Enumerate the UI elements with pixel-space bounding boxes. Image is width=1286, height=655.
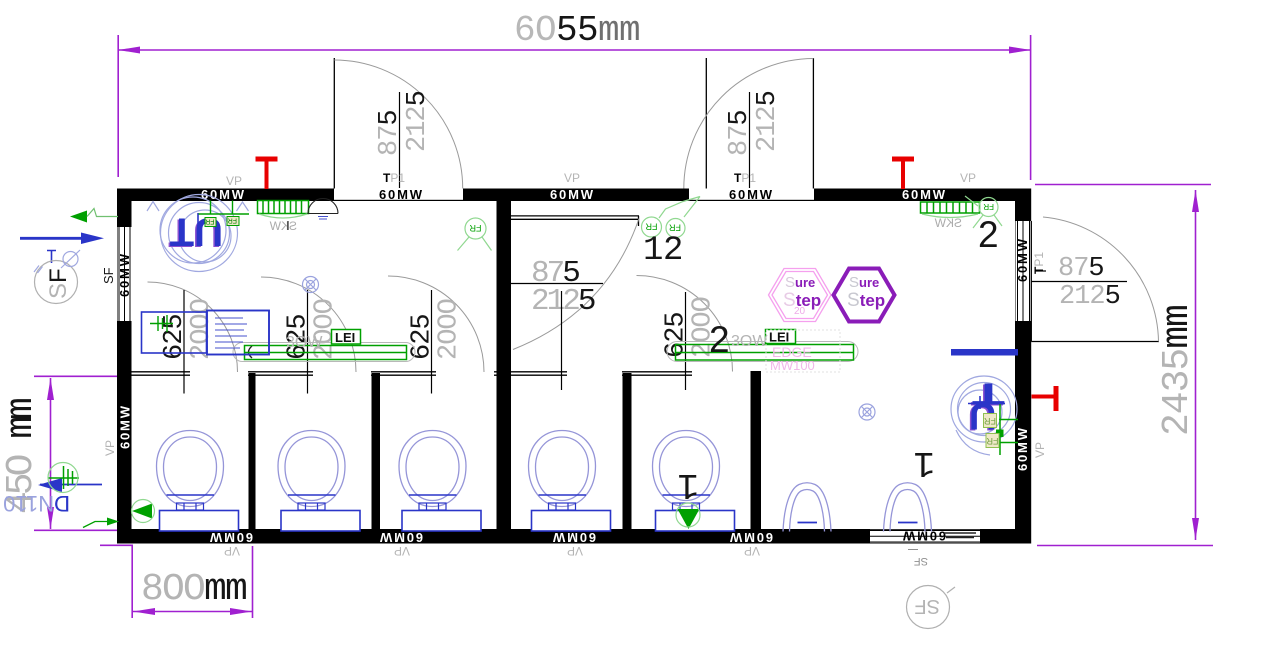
svg-text:625: 625 (408, 314, 438, 360)
svg-text:LEI: LEI (335, 330, 355, 345)
svg-text:2: 2 (709, 319, 730, 360)
svg-text:60MW: 60MW (729, 187, 773, 202)
svg-text:VP: VP (567, 544, 583, 558)
svg-text:2OOO: 2OOO (435, 299, 465, 360)
svg-text:TP1: TP1 (383, 171, 405, 185)
svg-text:VP: VP (960, 171, 976, 185)
svg-text:VP: VP (1033, 442, 1047, 458)
svg-text:SF: SF (45, 268, 72, 299)
svg-text:2125: 2125 (531, 284, 595, 319)
svg-text:2125: 2125 (1059, 282, 1120, 312)
svg-text:60MW: 60MW (550, 187, 594, 202)
svg-text:MW100: MW100 (770, 358, 815, 373)
svg-text:8OOmm: 8OOmm (141, 568, 246, 611)
svg-text:60MW: 60MW (379, 187, 423, 202)
svg-text:2OOO: 2OOO (187, 299, 217, 360)
svg-text:60MW: 60MW (902, 529, 946, 544)
svg-text:VP: VP (394, 544, 410, 558)
svg-text:60MW: 60MW (209, 530, 253, 545)
svg-text:875: 875 (1058, 254, 1104, 284)
svg-text:FR: FR (205, 218, 214, 225)
svg-text:2: 2 (663, 232, 683, 270)
svg-text:2125: 2125 (403, 91, 433, 152)
svg-text:UT: UT (170, 210, 223, 254)
svg-text:60MW: 60MW (1015, 238, 1030, 282)
svg-text:FR: FR (228, 217, 237, 224)
svg-text:875: 875 (725, 110, 755, 156)
svg-text:FR: FR (984, 416, 996, 426)
svg-text:60MW: 60MW (118, 405, 133, 449)
svg-text:FR: FR (983, 202, 994, 211)
svg-text:875: 875 (375, 110, 405, 156)
svg-text:60MW: 60MW (902, 187, 946, 202)
svg-text:60MW: 60MW (552, 530, 596, 545)
svg-text:6O55mm: 6O55mm (514, 10, 640, 51)
svg-text:Step: Step (847, 290, 885, 311)
svg-text:2125: 2125 (753, 91, 783, 152)
svg-text:VP: VP (744, 544, 760, 558)
svg-text:60MW: 60MW (1015, 427, 1030, 471)
svg-text:VP: VP (224, 544, 240, 558)
svg-text:1: 1 (677, 464, 699, 505)
svg-text:FR: FR (645, 222, 657, 232)
svg-text:Sure: Sure (785, 274, 815, 291)
svg-text:60MW: 60MW (729, 530, 773, 545)
svg-text:SKW: SKW (269, 219, 297, 233)
svg-text:VP: VP (226, 174, 242, 188)
svg-text:2: 2 (978, 214, 999, 255)
svg-text:1: 1 (643, 232, 663, 270)
svg-text:3OW: 3OW (731, 333, 768, 350)
svg-text:TP1: TP1 (1032, 252, 1046, 274)
svg-text:FR: FR (469, 223, 481, 233)
svg-text:60MW: 60MW (117, 253, 132, 297)
svg-text:D: D (54, 491, 70, 516)
svg-text:2435mm: 2435mm (1156, 305, 1199, 436)
svg-text:SF: SF (914, 555, 928, 567)
svg-text:Sure: Sure (849, 274, 879, 291)
svg-text:60MW: 60MW (379, 530, 423, 545)
svg-text:TP1: TP1 (734, 171, 756, 185)
svg-text:20: 20 (794, 306, 806, 317)
svg-text:LEI: LEI (769, 330, 789, 345)
svg-text:VP: VP (103, 440, 117, 456)
svg-text:3OW: 3OW (286, 334, 323, 351)
svg-text:1: 1 (913, 442, 935, 483)
svg-text:VP: VP (564, 171, 580, 185)
svg-text:SF: SF (101, 267, 116, 284)
svg-text:FR: FR (669, 223, 681, 233)
svg-text:625: 625 (662, 312, 692, 358)
svg-text:SKW: SKW (934, 216, 962, 230)
svg-text:SF: SF (914, 595, 940, 617)
svg-text:FR: FR (986, 436, 998, 446)
